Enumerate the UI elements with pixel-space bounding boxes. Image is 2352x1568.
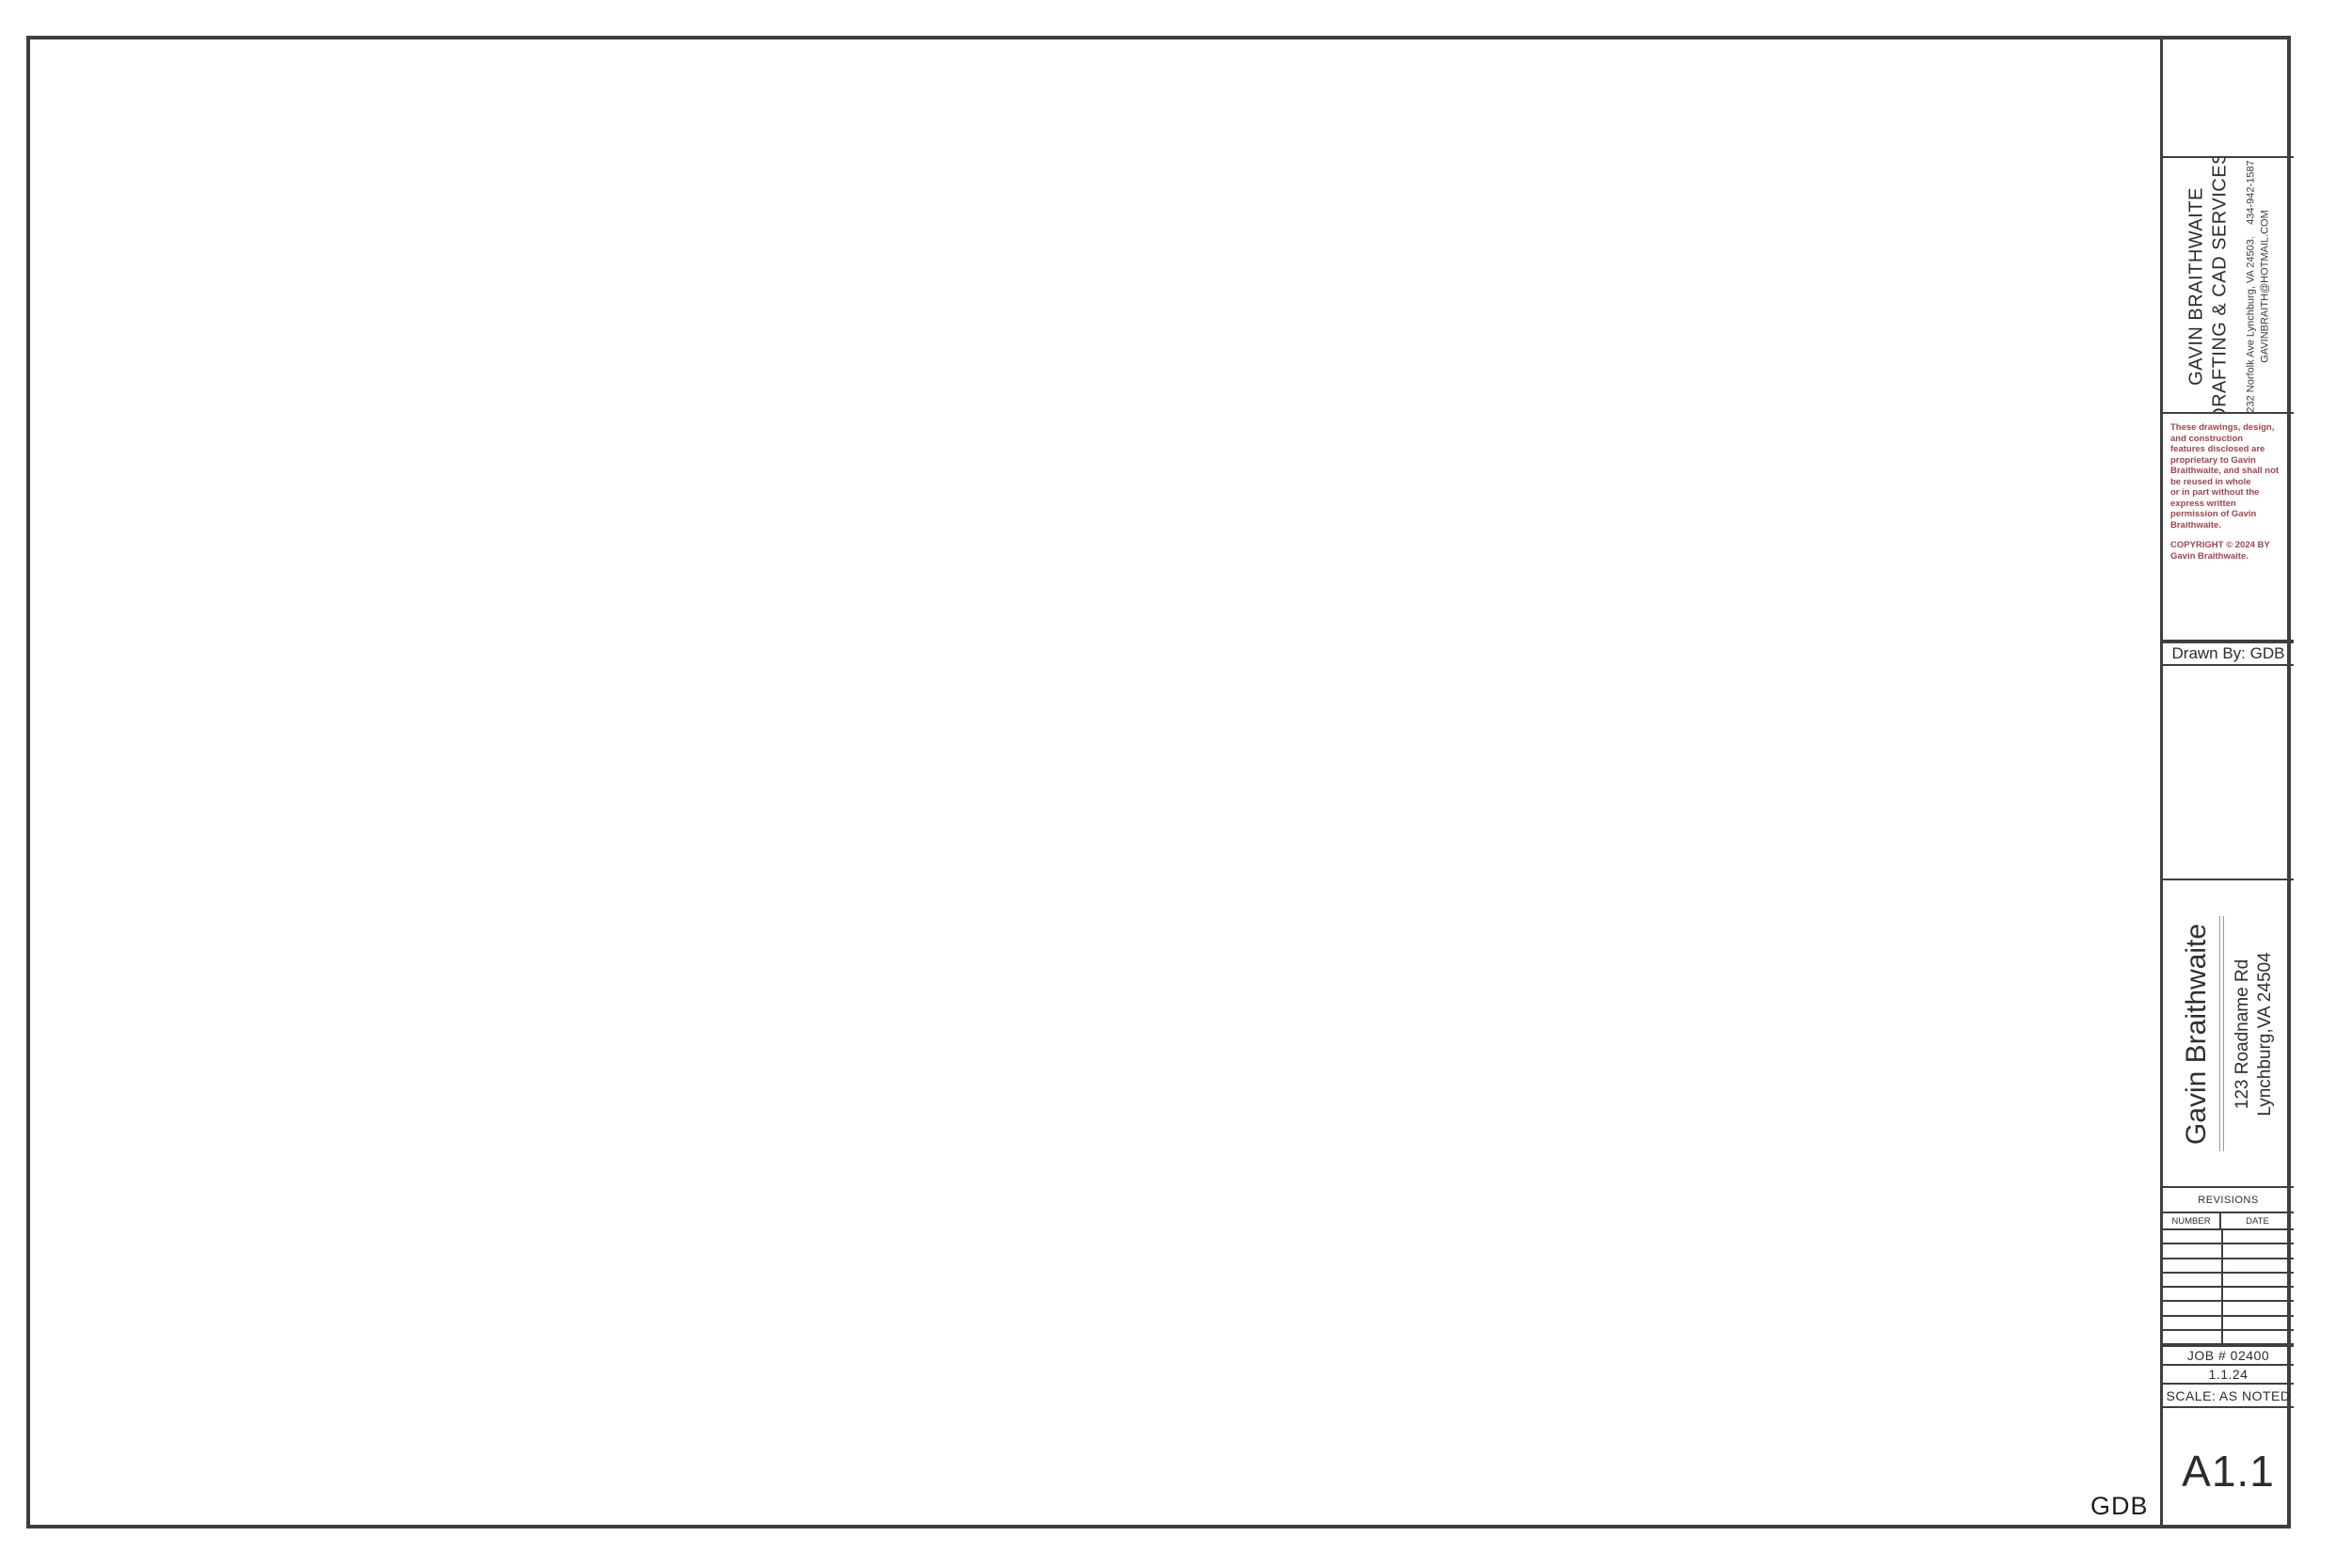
client-name: Gavin Braithwaite (2181, 924, 2213, 1145)
title-block-client: Gavin Braithwaite 123 Roadname Rd Lynchb… (2163, 880, 2294, 1188)
title-block-disclaimer: These drawings, design, and construction… (2163, 414, 2294, 641)
sheet-border (26, 36, 2291, 1528)
revisions-col-date: DATE (2221, 1213, 2294, 1228)
revision-row (2163, 1230, 2294, 1244)
client-address1: 123 Roadname Rd (2232, 959, 2254, 1110)
revisions-col-number: NUMBER (2163, 1213, 2221, 1228)
scale-band: SCALE: AS NOTED (2163, 1385, 2294, 1408)
company-address-phone: 232 Norfolk Ave Lynchburg, VA 24503. 434… (2246, 160, 2257, 412)
company-email: GAVINBRAITH@HOTMAIL.COM (2260, 210, 2271, 363)
revision-row (2163, 1274, 2294, 1288)
sheet-number: A1.1 (2163, 1408, 2294, 1526)
title-block-empty-top (2163, 36, 2294, 158)
job-number-band: JOB # 02400 (2163, 1345, 2294, 1366)
revision-row (2163, 1317, 2294, 1331)
copyright-line: COPYRIGHT © 2024 BY Gavin Braithwaite. (2170, 540, 2288, 562)
company-name-line1: GAVIN BRAITHWAITE (2185, 187, 2209, 386)
company-name-line2: DRAFTING & CAD SERVICES (2209, 158, 2233, 414)
revision-row (2163, 1288, 2294, 1302)
revisions-header: REVISIONS (2163, 1188, 2294, 1213)
revision-row (2163, 1244, 2294, 1259)
cad-sheet-screenshot: { "rooms": { "master_bath": "MASTER BATH… (0, 0, 2352, 1568)
title-block-drawn-by: Drawn By: GDB (2163, 641, 2294, 666)
revisions-column-headers: NUMBER DATE (2163, 1213, 2294, 1230)
date-band: 1.1.24 (2163, 1366, 2294, 1385)
revision-row (2163, 1302, 2294, 1316)
title-block: GAVIN BRAITHWAITE DRAFTING & CAD SERVICE… (2160, 36, 2294, 1528)
title-block-empty-mid (2163, 666, 2294, 880)
client-divider-rule (2219, 917, 2224, 1152)
revisions-rows (2163, 1230, 2294, 1345)
revision-row (2163, 1259, 2294, 1274)
title-block-company: GAVIN BRAITHWAITE DRAFTING & CAD SERVICE… (2163, 158, 2294, 414)
footer-initials: GDB (2090, 1492, 2149, 1521)
client-address2: Lynchburg,VA 24504 (2254, 952, 2277, 1116)
revision-row (2163, 1331, 2294, 1343)
